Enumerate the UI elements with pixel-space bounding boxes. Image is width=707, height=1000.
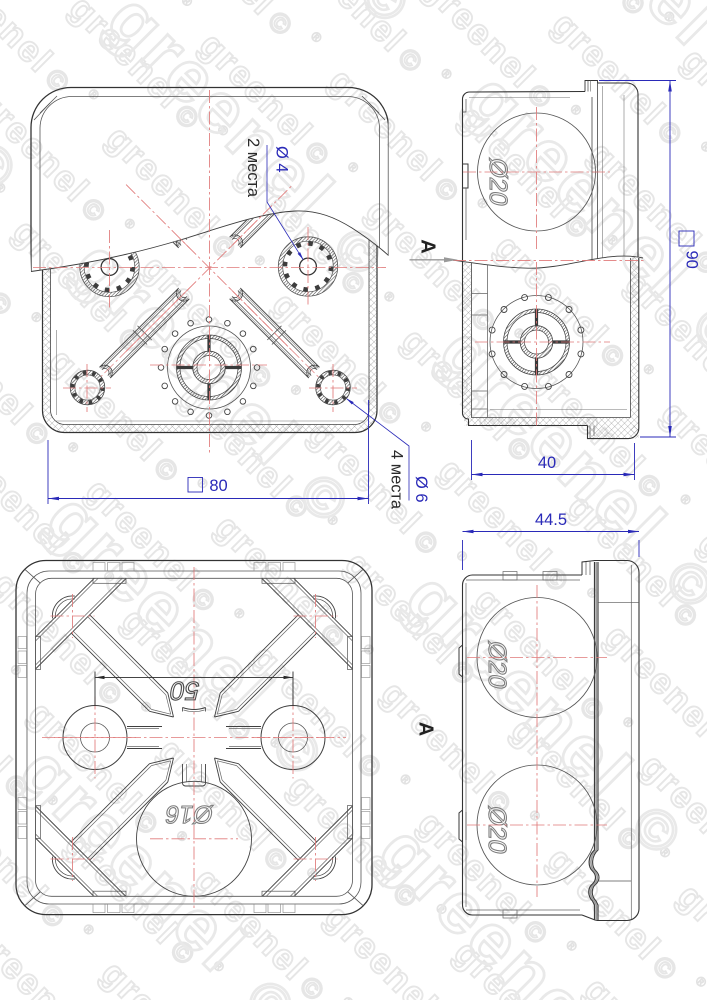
svg-text:Ø 6: Ø 6: [412, 476, 430, 503]
svg-text:90: 90: [683, 251, 701, 269]
svg-text:50: 50: [167, 676, 201, 706]
svg-text:Ø16: Ø16: [163, 800, 215, 828]
svg-text:Ø20: Ø20: [483, 639, 511, 691]
svg-text:A: A: [417, 239, 439, 253]
svg-text:Ø20: Ø20: [483, 804, 511, 856]
svg-text:44.5: 44.5: [535, 511, 567, 529]
svg-text:Ø 4: Ø 4: [273, 146, 291, 173]
svg-text:80: 80: [209, 477, 227, 495]
svg-text:4 места: 4 места: [388, 450, 406, 510]
svg-text:2 места: 2 места: [244, 138, 262, 198]
svg-text:40: 40: [538, 454, 556, 472]
svg-text:Ø20: Ø20: [484, 156, 512, 208]
svg-text:A: A: [415, 722, 437, 736]
